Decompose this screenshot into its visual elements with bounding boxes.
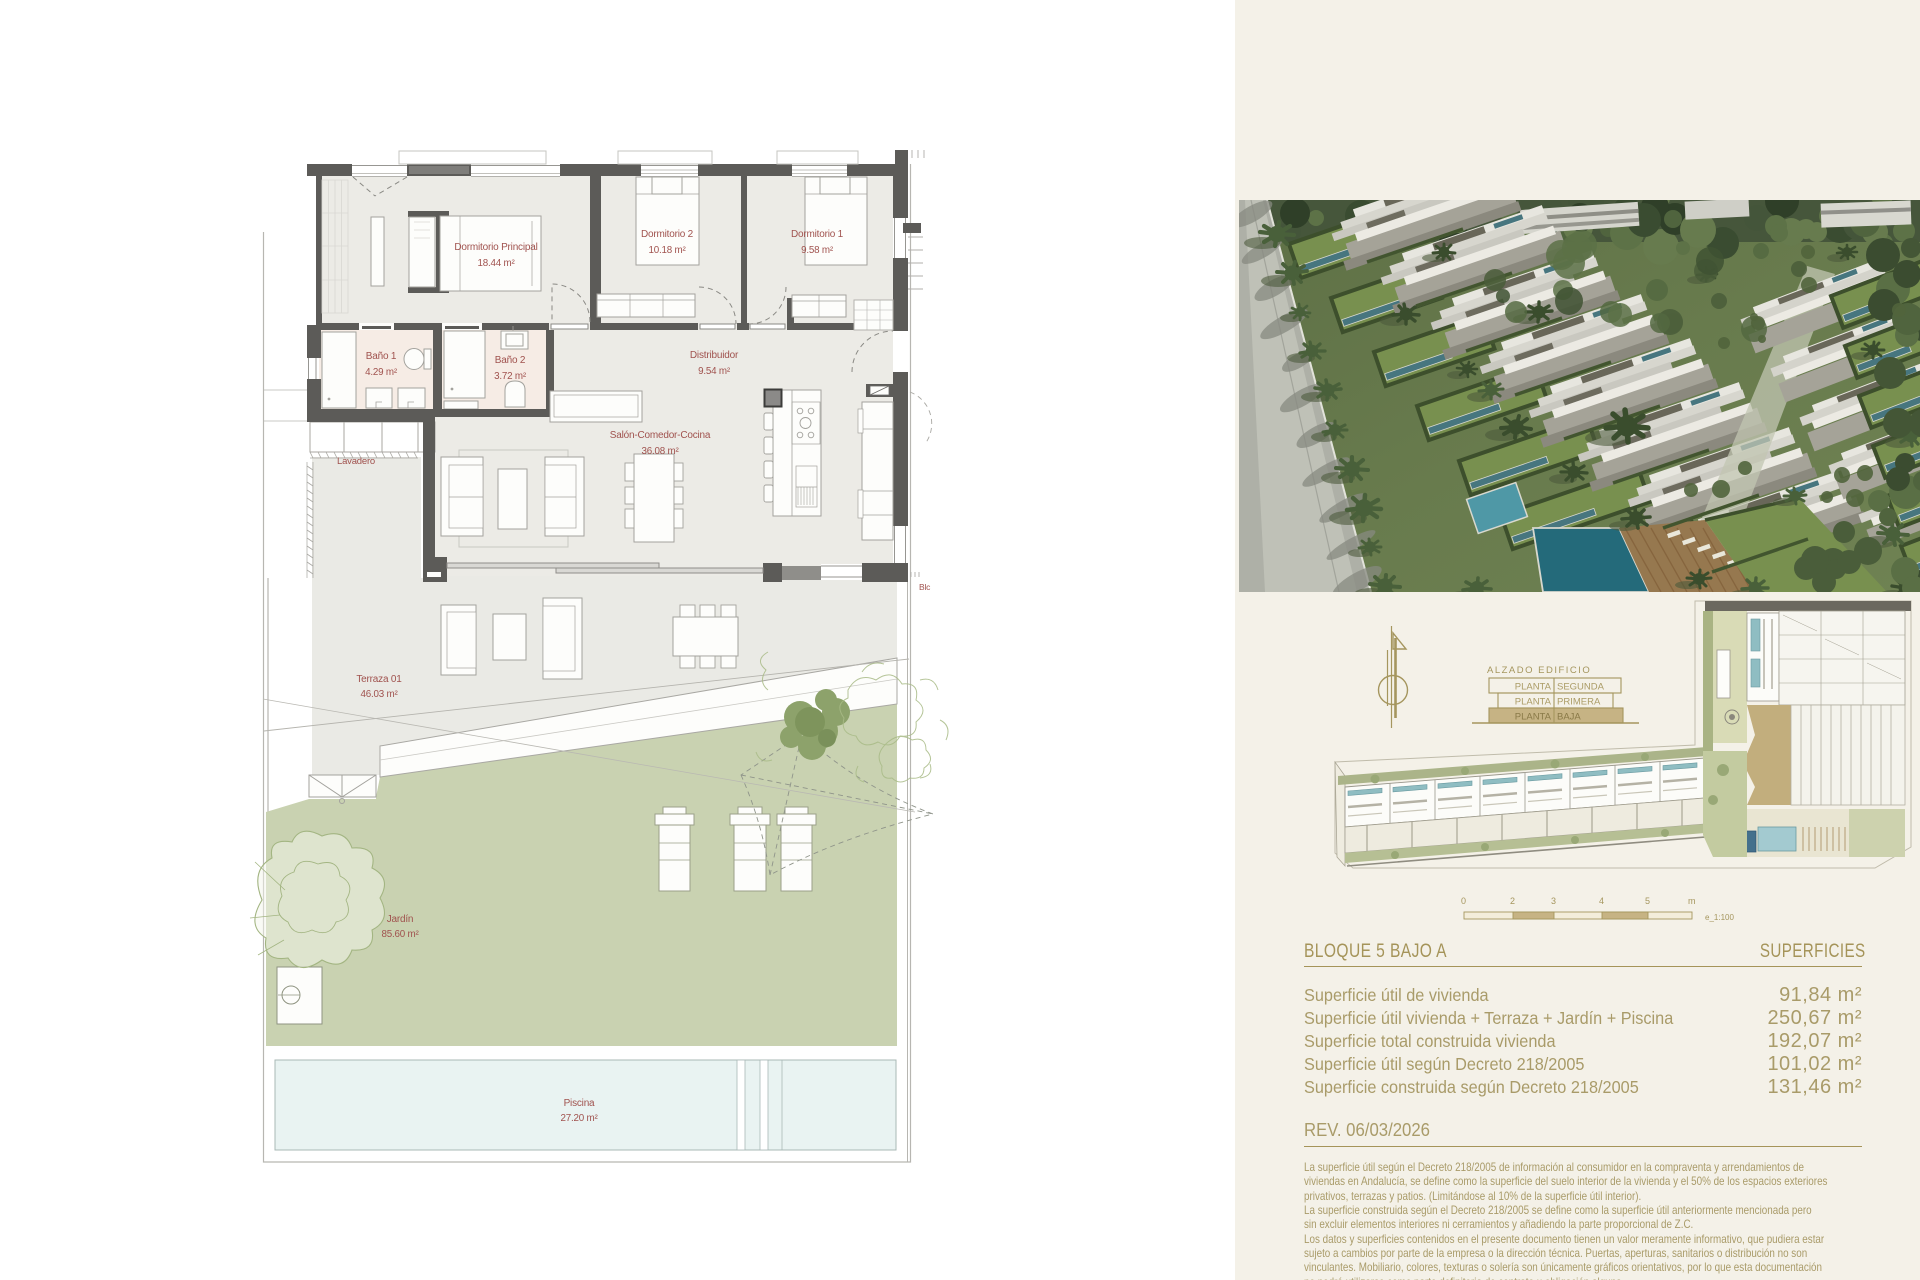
svg-text:Terraza 01: Terraza 01 <box>356 674 402 685</box>
svg-text:Baño 2: Baño 2 <box>495 355 526 366</box>
svg-text:SEGUNDA: SEGUNDA <box>1557 682 1605 693</box>
svg-text:18.44 m²: 18.44 m² <box>477 258 515 269</box>
svg-text:Lavadero: Lavadero <box>337 456 375 467</box>
svg-text:9.58 m²: 9.58 m² <box>801 245 834 256</box>
svg-text:Jardín: Jardín <box>387 914 414 925</box>
svg-text:3.72 m²: 3.72 m² <box>494 371 527 382</box>
svg-text:PLANTA: PLANTA <box>1515 697 1552 708</box>
svg-text:3: 3 <box>1551 896 1556 906</box>
svg-text:36.08 m²: 36.08 m² <box>641 446 679 457</box>
svg-text:Baño 1: Baño 1 <box>366 351 397 362</box>
svg-text:Piscina: Piscina <box>564 1098 595 1109</box>
svg-text:Dormitorio 1: Dormitorio 1 <box>791 229 844 240</box>
svg-text:2: 2 <box>1510 896 1515 906</box>
svg-text:BAJA: BAJA <box>1557 712 1581 723</box>
svg-text:Distribuidor: Distribuidor <box>690 350 739 361</box>
svg-text:e_1:100: e_1:100 <box>1705 913 1734 922</box>
svg-text:Dormitorio Principal: Dormitorio Principal <box>454 242 537 253</box>
svg-text:85.60 m²: 85.60 m² <box>381 929 419 940</box>
svg-text:PRIMERA: PRIMERA <box>1557 697 1601 708</box>
svg-text:PLANTA: PLANTA <box>1515 682 1552 693</box>
svg-text:27.20 m²: 27.20 m² <box>560 1113 598 1124</box>
svg-text:Dormitorio 2: Dormitorio 2 <box>641 229 694 240</box>
svg-text:m: m <box>1688 896 1696 906</box>
svg-text:4.29 m²: 4.29 m² <box>365 367 398 378</box>
svg-text:ALZADO EDIFICIO: ALZADO EDIFICIO <box>1487 665 1591 676</box>
svg-text:10.18 m²: 10.18 m² <box>648 245 686 256</box>
svg-text:PLANTA: PLANTA <box>1515 712 1552 723</box>
svg-text:Blc: Blc <box>919 582 931 592</box>
svg-text:5: 5 <box>1645 896 1650 906</box>
svg-text:0: 0 <box>1461 896 1466 906</box>
svg-text:4: 4 <box>1599 896 1604 906</box>
svg-text:46.03 m²: 46.03 m² <box>360 689 398 700</box>
svg-text:Salón-Comedor-Cocina: Salón-Comedor-Cocina <box>610 430 711 441</box>
svg-text:9.54 m²: 9.54 m² <box>698 366 731 377</box>
